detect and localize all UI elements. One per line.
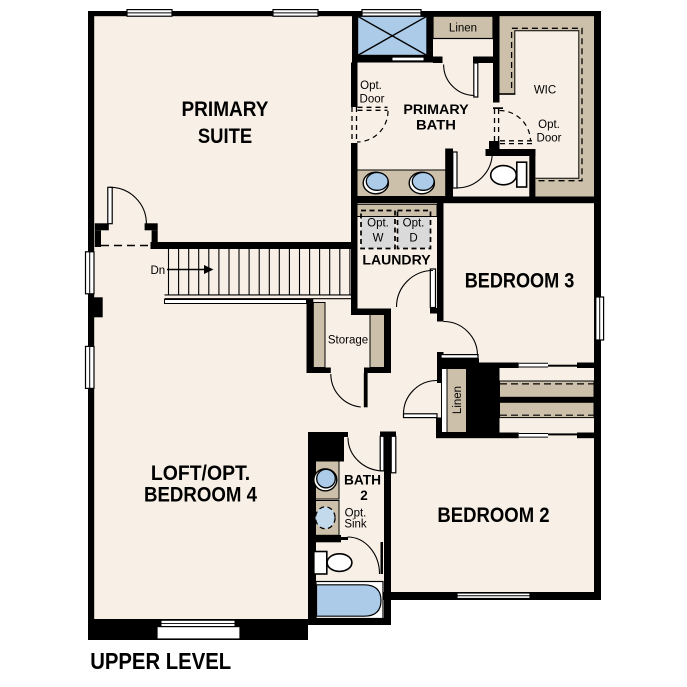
svg-text:D: D — [409, 233, 417, 245]
svg-text:WIC: WIC — [534, 85, 556, 97]
svg-text:BEDROOM 4: BEDROOM 4 — [144, 482, 257, 506]
svg-text:Sink: Sink — [344, 519, 367, 531]
svg-text:W: W — [373, 233, 384, 245]
svg-text:LAUNDRY: LAUNDRY — [362, 253, 430, 268]
svg-text:Opt.: Opt. — [367, 218, 389, 230]
svg-text:PRIMARY: PRIMARY — [182, 97, 269, 121]
svg-text:BATH: BATH — [416, 118, 456, 133]
svg-text:PRIMARY: PRIMARY — [403, 102, 468, 117]
svg-text:Linen: Linen — [452, 386, 464, 414]
svg-text:Storage: Storage — [328, 335, 368, 347]
svg-text:Door: Door — [537, 132, 562, 144]
svg-text:Door: Door — [360, 94, 385, 106]
svg-text:2: 2 — [360, 488, 368, 503]
svg-text:BEDROOM 2: BEDROOM 2 — [437, 503, 549, 527]
svg-text:BATH: BATH — [344, 472, 381, 487]
svg-text:UPPER LEVEL: UPPER LEVEL — [90, 648, 231, 674]
svg-text:SUITE: SUITE — [198, 124, 252, 148]
svg-text:BEDROOM 3: BEDROOM 3 — [465, 269, 575, 293]
svg-text:Opt.: Opt. — [538, 119, 560, 131]
svg-text:Opt.: Opt. — [360, 80, 382, 92]
svg-text:Dn: Dn — [151, 265, 166, 277]
svg-text:Opt.: Opt. — [403, 218, 425, 230]
svg-text:Linen: Linen — [449, 23, 477, 35]
